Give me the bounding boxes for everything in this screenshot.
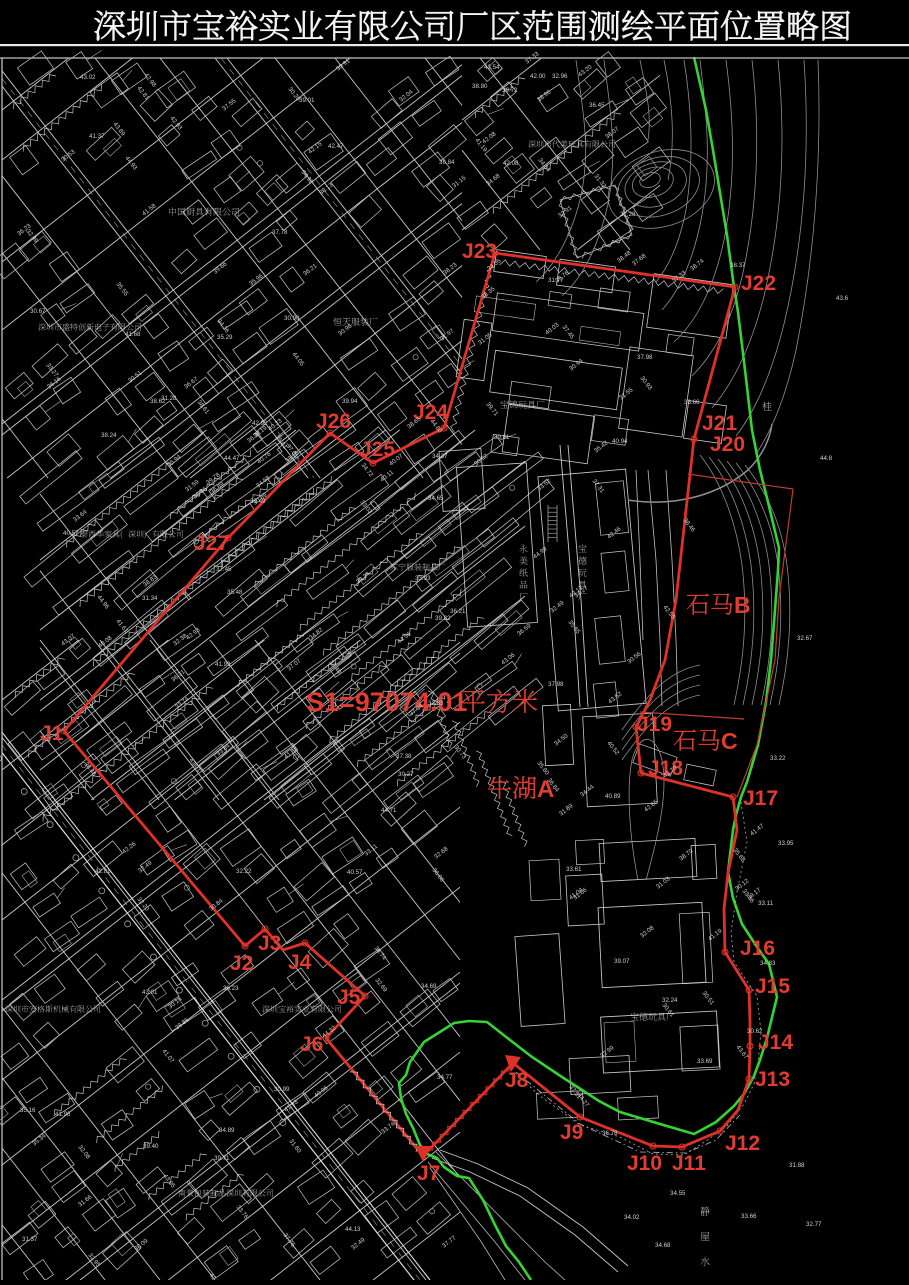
svg-text:31.28: 31.28 [161, 395, 177, 402]
svg-text:J25: J25 [360, 438, 395, 461]
svg-text:J21: J21 [702, 412, 737, 435]
svg-text:J1: J1 [40, 722, 64, 745]
svg-text:42.08: 42.08 [503, 160, 519, 167]
svg-text:J4: J4 [288, 951, 312, 974]
svg-text:43.6: 43.6 [836, 295, 849, 302]
svg-text:J7: J7 [417, 1162, 440, 1185]
svg-text:34.68: 34.68 [655, 1242, 671, 1249]
svg-text:32.96: 32.96 [552, 73, 568, 80]
svg-text:J13: J13 [755, 1068, 790, 1091]
svg-text:43.01: 43.01 [142, 989, 158, 996]
svg-text:36.84: 36.84 [439, 159, 455, 166]
svg-text:32.22: 32.22 [236, 868, 252, 875]
svg-text:J22: J22 [741, 272, 776, 295]
svg-text:34.77: 34.77 [437, 1074, 453, 1081]
svg-text:33.22: 33.22 [770, 755, 786, 762]
svg-text:J11: J11 [672, 1152, 706, 1175]
svg-text:36.23: 36.23 [223, 985, 239, 992]
svg-text:39.72: 39.72 [502, 87, 518, 94]
svg-text:36.21: 36.21 [450, 608, 466, 615]
svg-text:37.98: 37.98 [637, 354, 653, 361]
svg-text:32.67: 32.67 [797, 635, 813, 642]
svg-text:34.69: 34.69 [421, 983, 437, 990]
svg-text:39.01: 39.01 [299, 97, 315, 104]
svg-text:35.16: 35.16 [20, 1107, 36, 1114]
svg-text:J15: J15 [755, 975, 790, 998]
svg-text:39.40: 39.40 [143, 1143, 159, 1150]
svg-text:J27: J27 [194, 532, 229, 555]
svg-text:36.45: 36.45 [589, 102, 605, 109]
svg-text:30.62: 30.62 [747, 1028, 763, 1035]
svg-text:33.95: 33.95 [778, 840, 794, 847]
svg-text:34.37: 34.37 [432, 453, 448, 460]
svg-text:33.61: 33.61 [566, 866, 582, 873]
svg-text:J17: J17 [743, 787, 778, 810]
svg-text:30.27: 30.27 [398, 771, 414, 778]
svg-text:36.78: 36.78 [602, 1130, 618, 1137]
svg-text:32.24: 32.24 [662, 997, 678, 1004]
svg-text:39.94: 39.94 [342, 398, 358, 405]
svg-text:44.47: 44.47 [224, 455, 240, 462]
svg-text:32.77: 32.77 [806, 1221, 822, 1228]
svg-text:38.24: 38.24 [101, 432, 117, 439]
svg-text:35.48: 35.48 [227, 589, 243, 596]
svg-text:40.89: 40.89 [605, 793, 621, 800]
svg-text:30.67: 30.67 [30, 308, 46, 315]
svg-text:37.98: 37.98 [548, 681, 564, 688]
svg-text:34.65: 34.65 [428, 495, 444, 502]
svg-text:B: B [734, 592, 751, 618]
svg-text:33.69: 33.69 [697, 1058, 713, 1065]
svg-text:31.37: 31.37 [22, 1236, 38, 1243]
svg-text:41.37: 41.37 [89, 133, 105, 140]
svg-text:42.92: 42.92 [252, 420, 268, 427]
svg-text:40.57: 40.57 [347, 869, 363, 876]
svg-text:39.61: 39.61 [494, 434, 510, 441]
svg-text:33.33: 33.33 [428, 700, 444, 707]
svg-text:38.37: 38.37 [730, 262, 746, 269]
svg-text:34.02: 34.02 [624, 1214, 640, 1221]
svg-text:42.47: 42.47 [328, 143, 344, 150]
svg-text:J16: J16 [740, 937, 775, 960]
svg-text:J8: J8 [505, 1069, 529, 1092]
svg-text:40.57: 40.57 [63, 530, 79, 537]
svg-text:42.00: 42.00 [530, 73, 546, 80]
svg-text:37.38: 37.38 [396, 753, 412, 760]
svg-text:40.94: 40.94 [612, 438, 628, 445]
svg-text:39.07: 39.07 [614, 958, 630, 965]
svg-text:J6: J6 [300, 1033, 323, 1056]
svg-text:37.78: 37.78 [272, 229, 288, 236]
svg-text:J14: J14 [758, 1031, 793, 1054]
svg-text:39.71: 39.71 [214, 1155, 230, 1162]
svg-text:J9: J9 [560, 1121, 583, 1144]
svg-text:41.96: 41.96 [55, 1111, 71, 1118]
svg-text:34.83: 34.83 [760, 960, 776, 967]
svg-text:31.34: 31.34 [142, 595, 158, 602]
svg-text:35.29: 35.29 [217, 334, 233, 341]
svg-text:J23: J23 [462, 240, 497, 263]
svg-text:33.66: 33.66 [741, 1213, 757, 1220]
svg-text:J12: J12 [725, 1132, 760, 1155]
svg-text:39.82: 39.82 [435, 615, 451, 622]
svg-text:43.02: 43.02 [80, 74, 96, 81]
svg-text:44.8: 44.8 [820, 455, 833, 462]
svg-text:33.93: 33.93 [415, 575, 431, 582]
svg-text:J5: J5 [337, 986, 361, 1009]
svg-text:37.45: 37.45 [216, 566, 232, 573]
svg-text:30.99: 30.99 [274, 1086, 290, 1093]
svg-text:30.90: 30.90 [284, 315, 300, 322]
svg-text:41.68: 41.68 [125, 331, 141, 338]
svg-text:J26: J26 [316, 410, 351, 433]
svg-text:37.28: 37.28 [620, 211, 636, 218]
svg-text:38.80: 38.80 [472, 83, 488, 90]
svg-text:44.13: 44.13 [345, 1226, 361, 1233]
svg-text:43.54: 43.54 [484, 64, 500, 71]
svg-text:44.71: 44.71 [381, 807, 397, 814]
svg-text:41.99: 41.99 [215, 661, 231, 668]
svg-text:34.55: 34.55 [670, 1190, 686, 1197]
svg-text:31.88: 31.88 [789, 1162, 805, 1169]
svg-text:J3: J3 [258, 932, 281, 955]
svg-text:C: C [721, 728, 738, 754]
svg-text:J20: J20 [710, 433, 745, 456]
svg-text:42.81: 42.81 [95, 868, 111, 875]
svg-text:34.89: 34.89 [219, 1127, 235, 1134]
svg-text:31.77: 31.77 [548, 277, 564, 284]
svg-text:J2: J2 [230, 952, 253, 975]
svg-text:J19: J19 [637, 713, 672, 736]
svg-text:33.11: 33.11 [758, 900, 774, 907]
svg-text:J10: J10 [627, 1152, 662, 1175]
svg-text:33.66: 33.66 [684, 399, 700, 406]
